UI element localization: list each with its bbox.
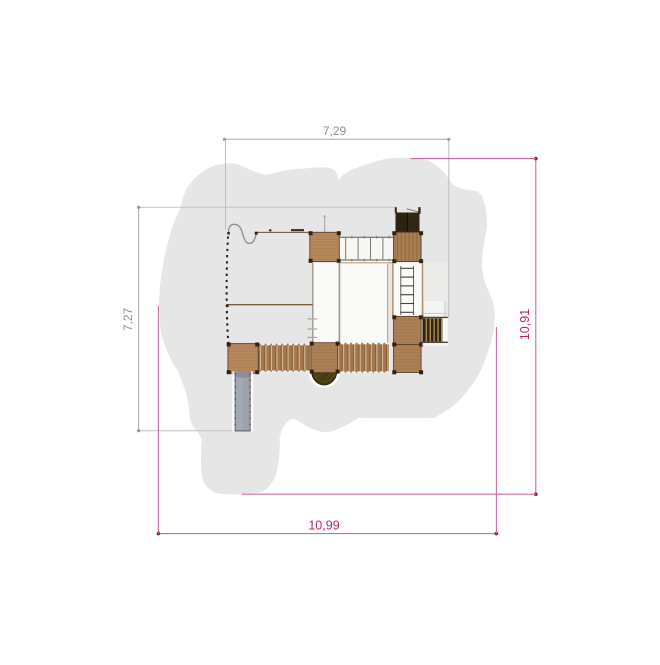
svg-text:10,99: 10,99: [308, 519, 339, 533]
svg-text:10,91: 10,91: [518, 309, 532, 340]
svg-text:7,27: 7,27: [121, 307, 135, 331]
svg-text:7,29: 7,29: [323, 124, 347, 138]
